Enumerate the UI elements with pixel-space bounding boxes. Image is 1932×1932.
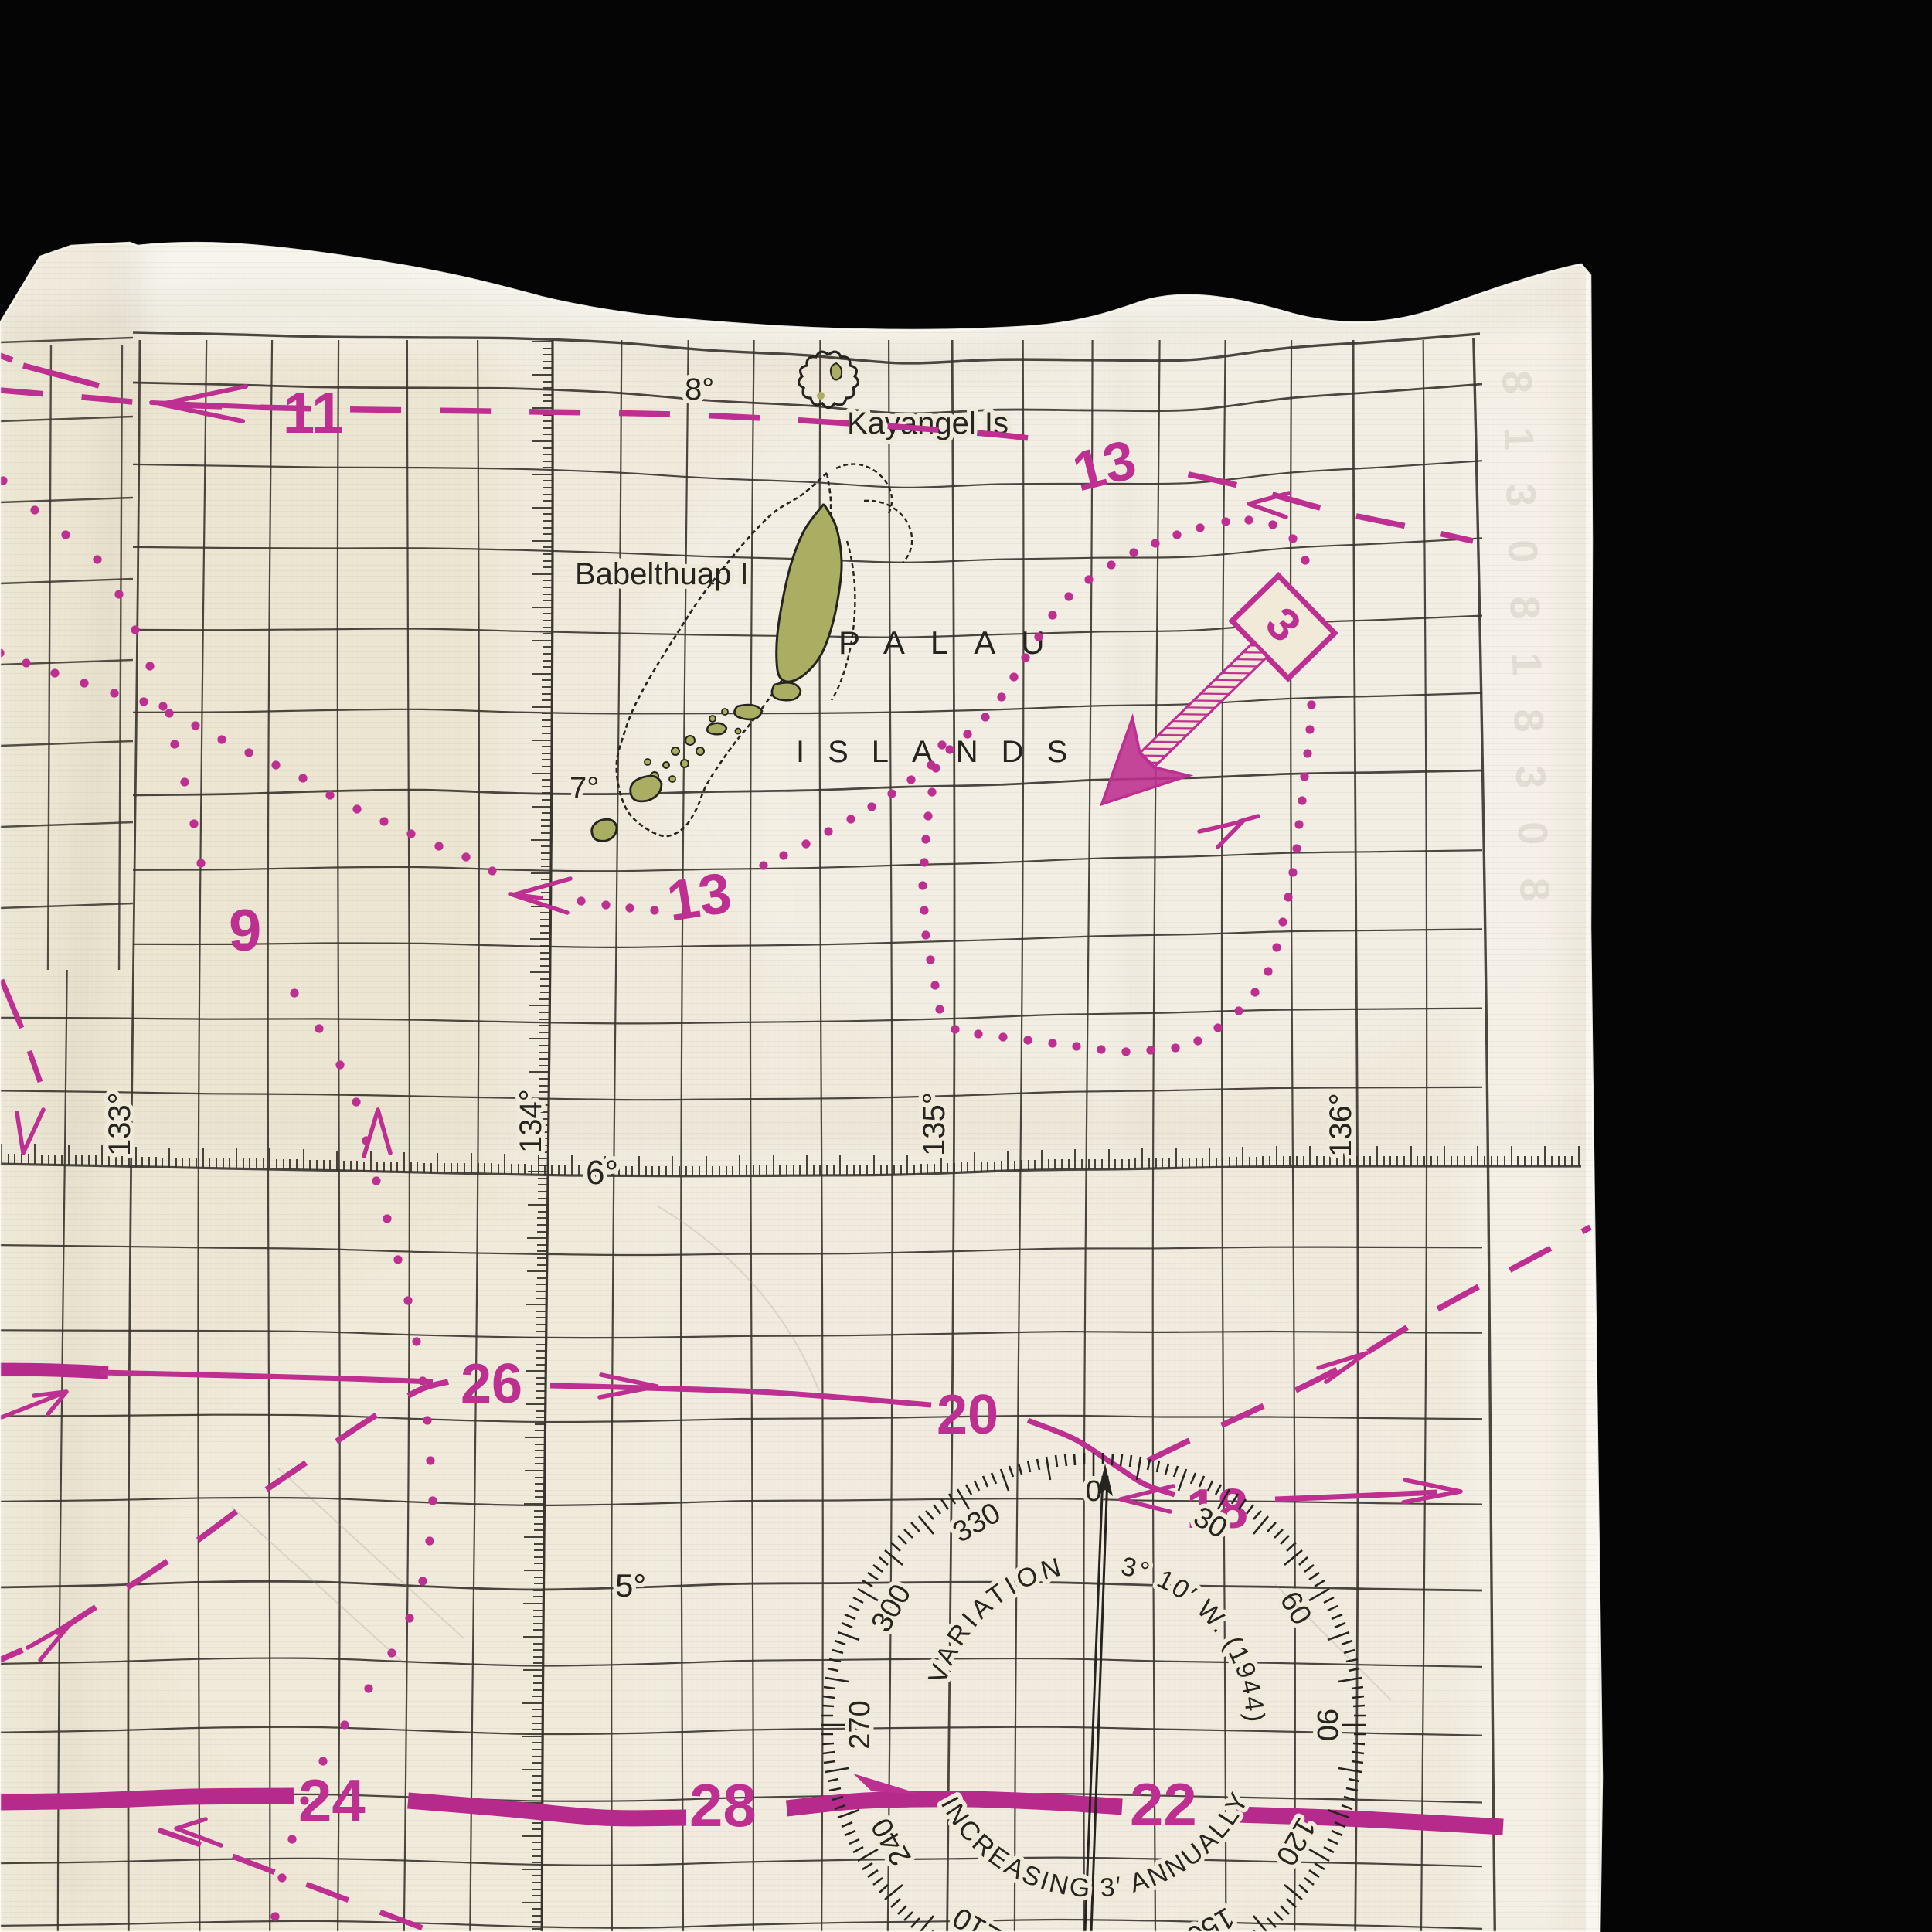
svg-text:135°: 135° xyxy=(917,1092,951,1156)
svg-text:134°: 134° xyxy=(514,1089,548,1153)
svg-text:PALAU: PALAU xyxy=(838,624,1070,661)
svg-text:8°: 8° xyxy=(685,372,714,406)
svg-text:22: 22 xyxy=(1130,1770,1197,1838)
svg-text:270: 270 xyxy=(844,1700,876,1749)
svg-text:7°: 7° xyxy=(570,771,599,805)
svg-text:13: 13 xyxy=(663,860,736,934)
svg-text:5°: 5° xyxy=(615,1567,646,1604)
svg-text:Babelthuap I: Babelthuap I xyxy=(575,557,749,591)
svg-text:24: 24 xyxy=(298,1767,366,1835)
svg-text:ISLANDS: ISLANDS xyxy=(796,735,1090,769)
svg-text:6°: 6° xyxy=(586,1154,618,1192)
svg-text:11: 11 xyxy=(283,381,343,445)
svg-text:26: 26 xyxy=(461,1353,522,1415)
svg-text:28: 28 xyxy=(689,1771,757,1839)
svg-text:136°: 136° xyxy=(1324,1093,1358,1157)
svg-text:133°: 133° xyxy=(103,1092,137,1156)
svg-text:9: 9 xyxy=(229,898,261,964)
svg-text:20: 20 xyxy=(937,1384,998,1446)
svg-text:90: 90 xyxy=(1311,1709,1343,1741)
